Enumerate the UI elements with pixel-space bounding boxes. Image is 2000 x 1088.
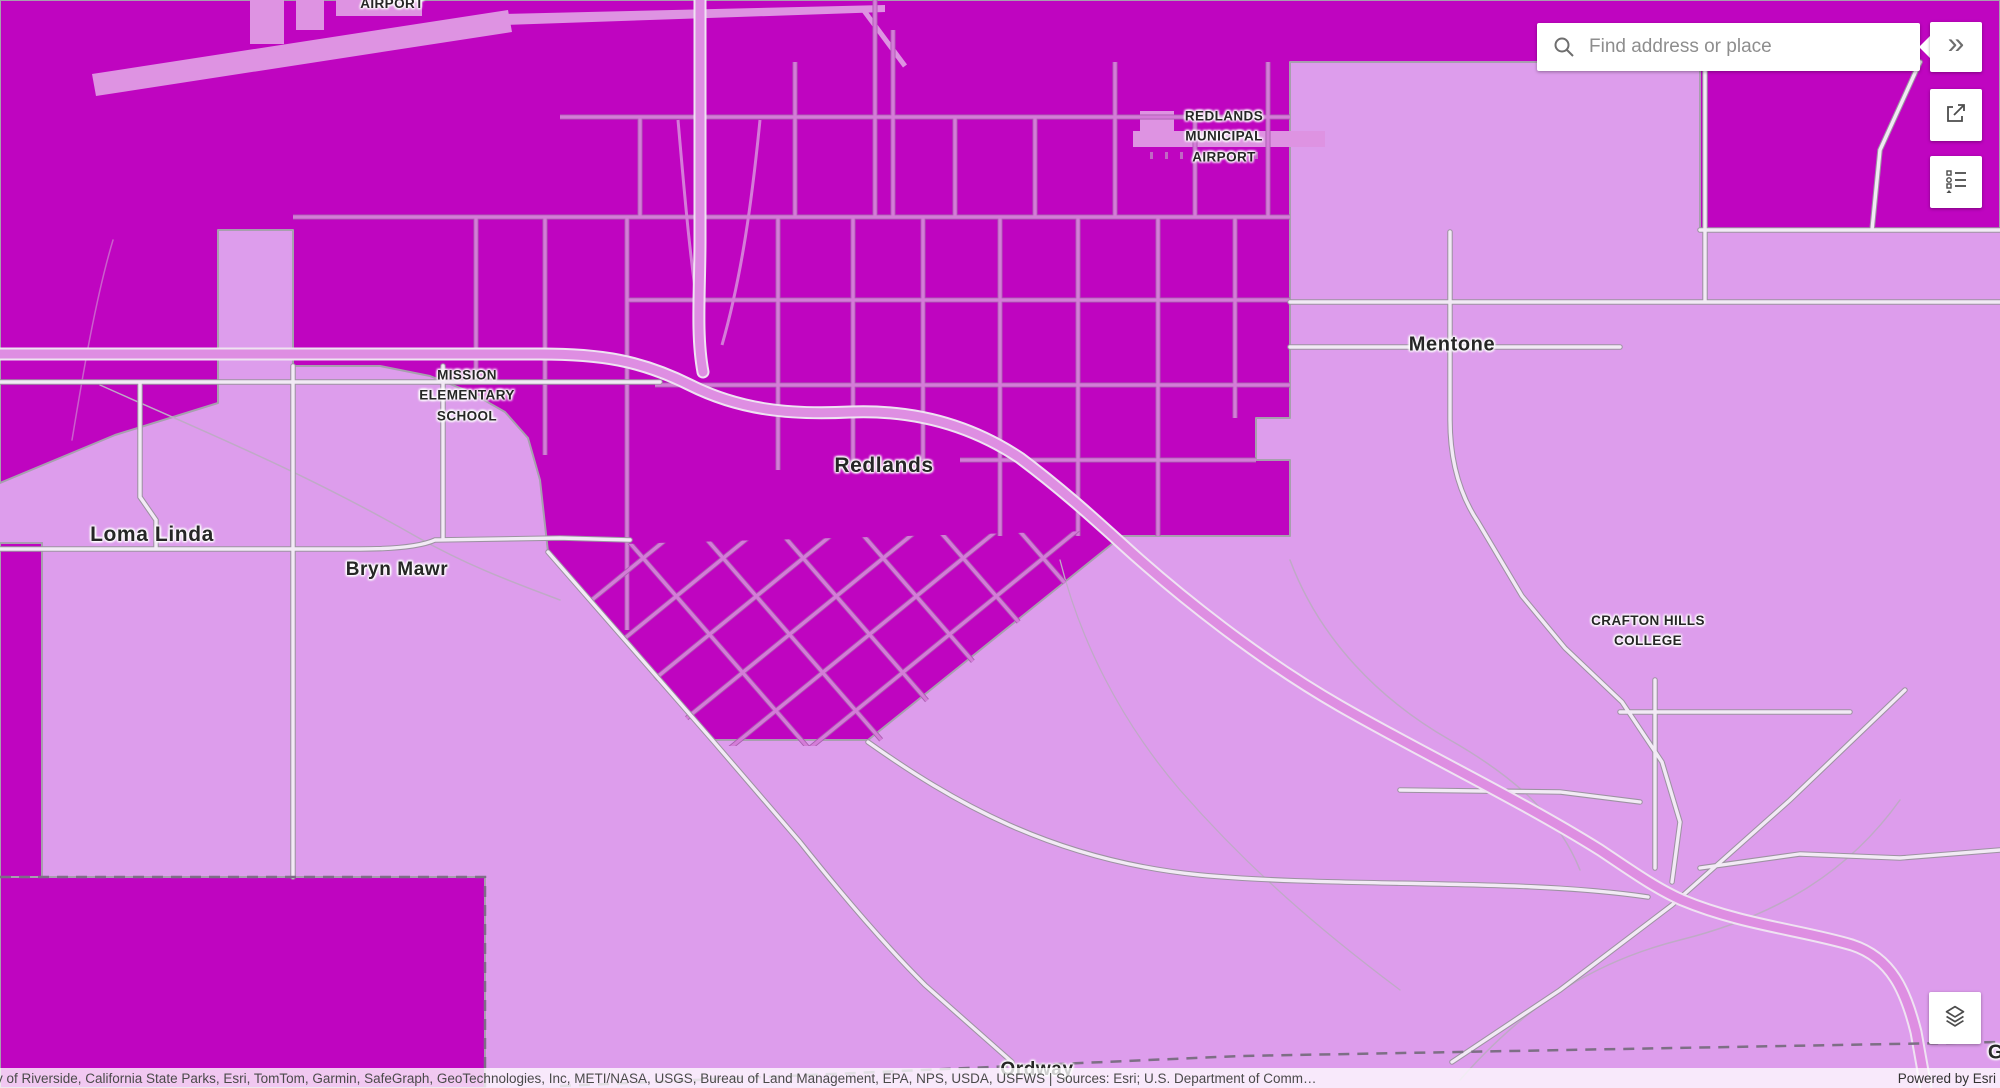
basemap-choropleth: [0, 0, 2000, 1088]
attribution-sources-text: y of Riverside, California State Parks, …: [0, 1071, 1317, 1086]
expand-button[interactable]: »: [1930, 22, 1982, 72]
search-collapse-notch: [1919, 36, 1930, 58]
powered-by-esri: Powered by Esri: [1898, 1071, 2000, 1086]
map-canvas[interactable]: AIRPORT REDLANDS MUNICIPAL AIRPORT MISSI…: [0, 0, 2000, 1088]
search-input[interactable]: [1587, 35, 1920, 59]
legend-list-icon: [1943, 167, 1969, 198]
layers-icon: [1940, 1001, 1970, 1036]
search-icon: [1553, 36, 1575, 58]
legend-button[interactable]: [1930, 156, 1982, 208]
basemap-layers-button[interactable]: [1929, 992, 1981, 1044]
share-icon: [1943, 100, 1969, 131]
share-button[interactable]: [1930, 89, 1982, 141]
search-box: [1537, 23, 1920, 71]
attribution-bar: y of Riverside, California State Parks, …: [0, 1068, 2000, 1088]
